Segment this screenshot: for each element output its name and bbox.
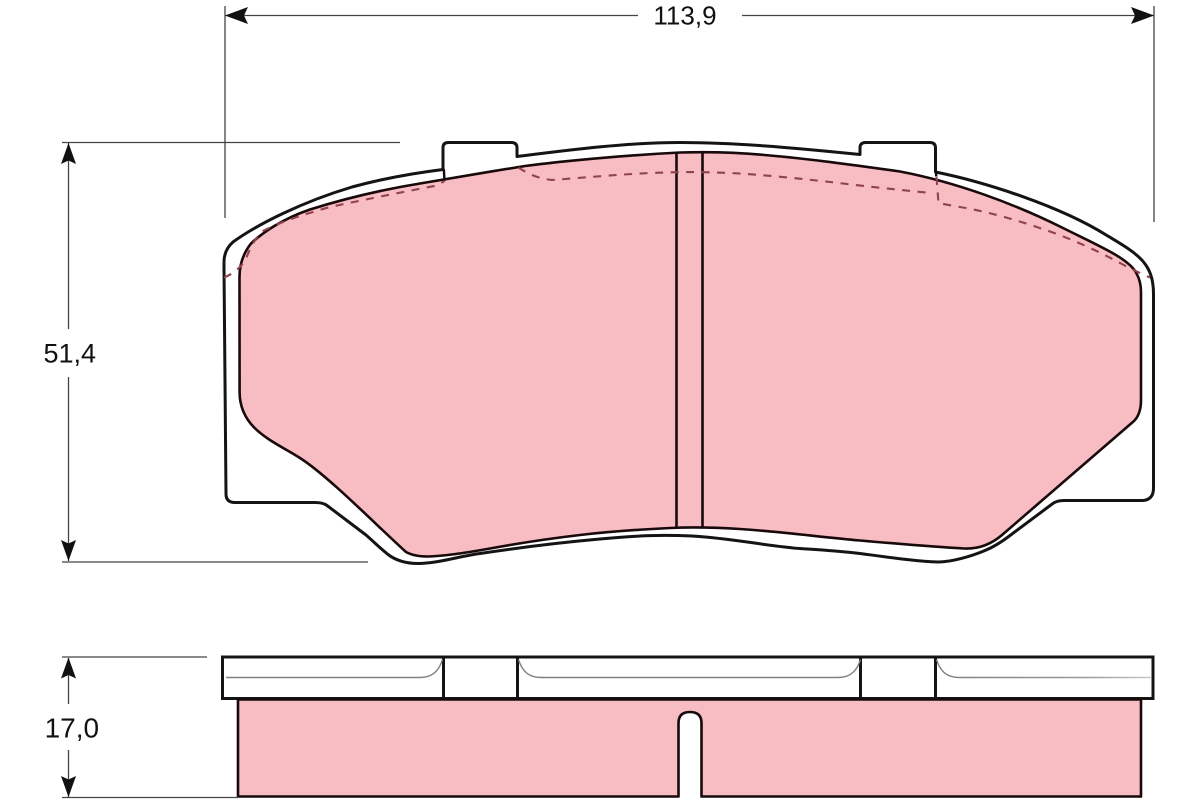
svg-text:17,0: 17,0: [45, 713, 100, 744]
svg-text:113,9: 113,9: [653, 0, 716, 30]
svg-text:51,4: 51,4: [44, 339, 97, 369]
